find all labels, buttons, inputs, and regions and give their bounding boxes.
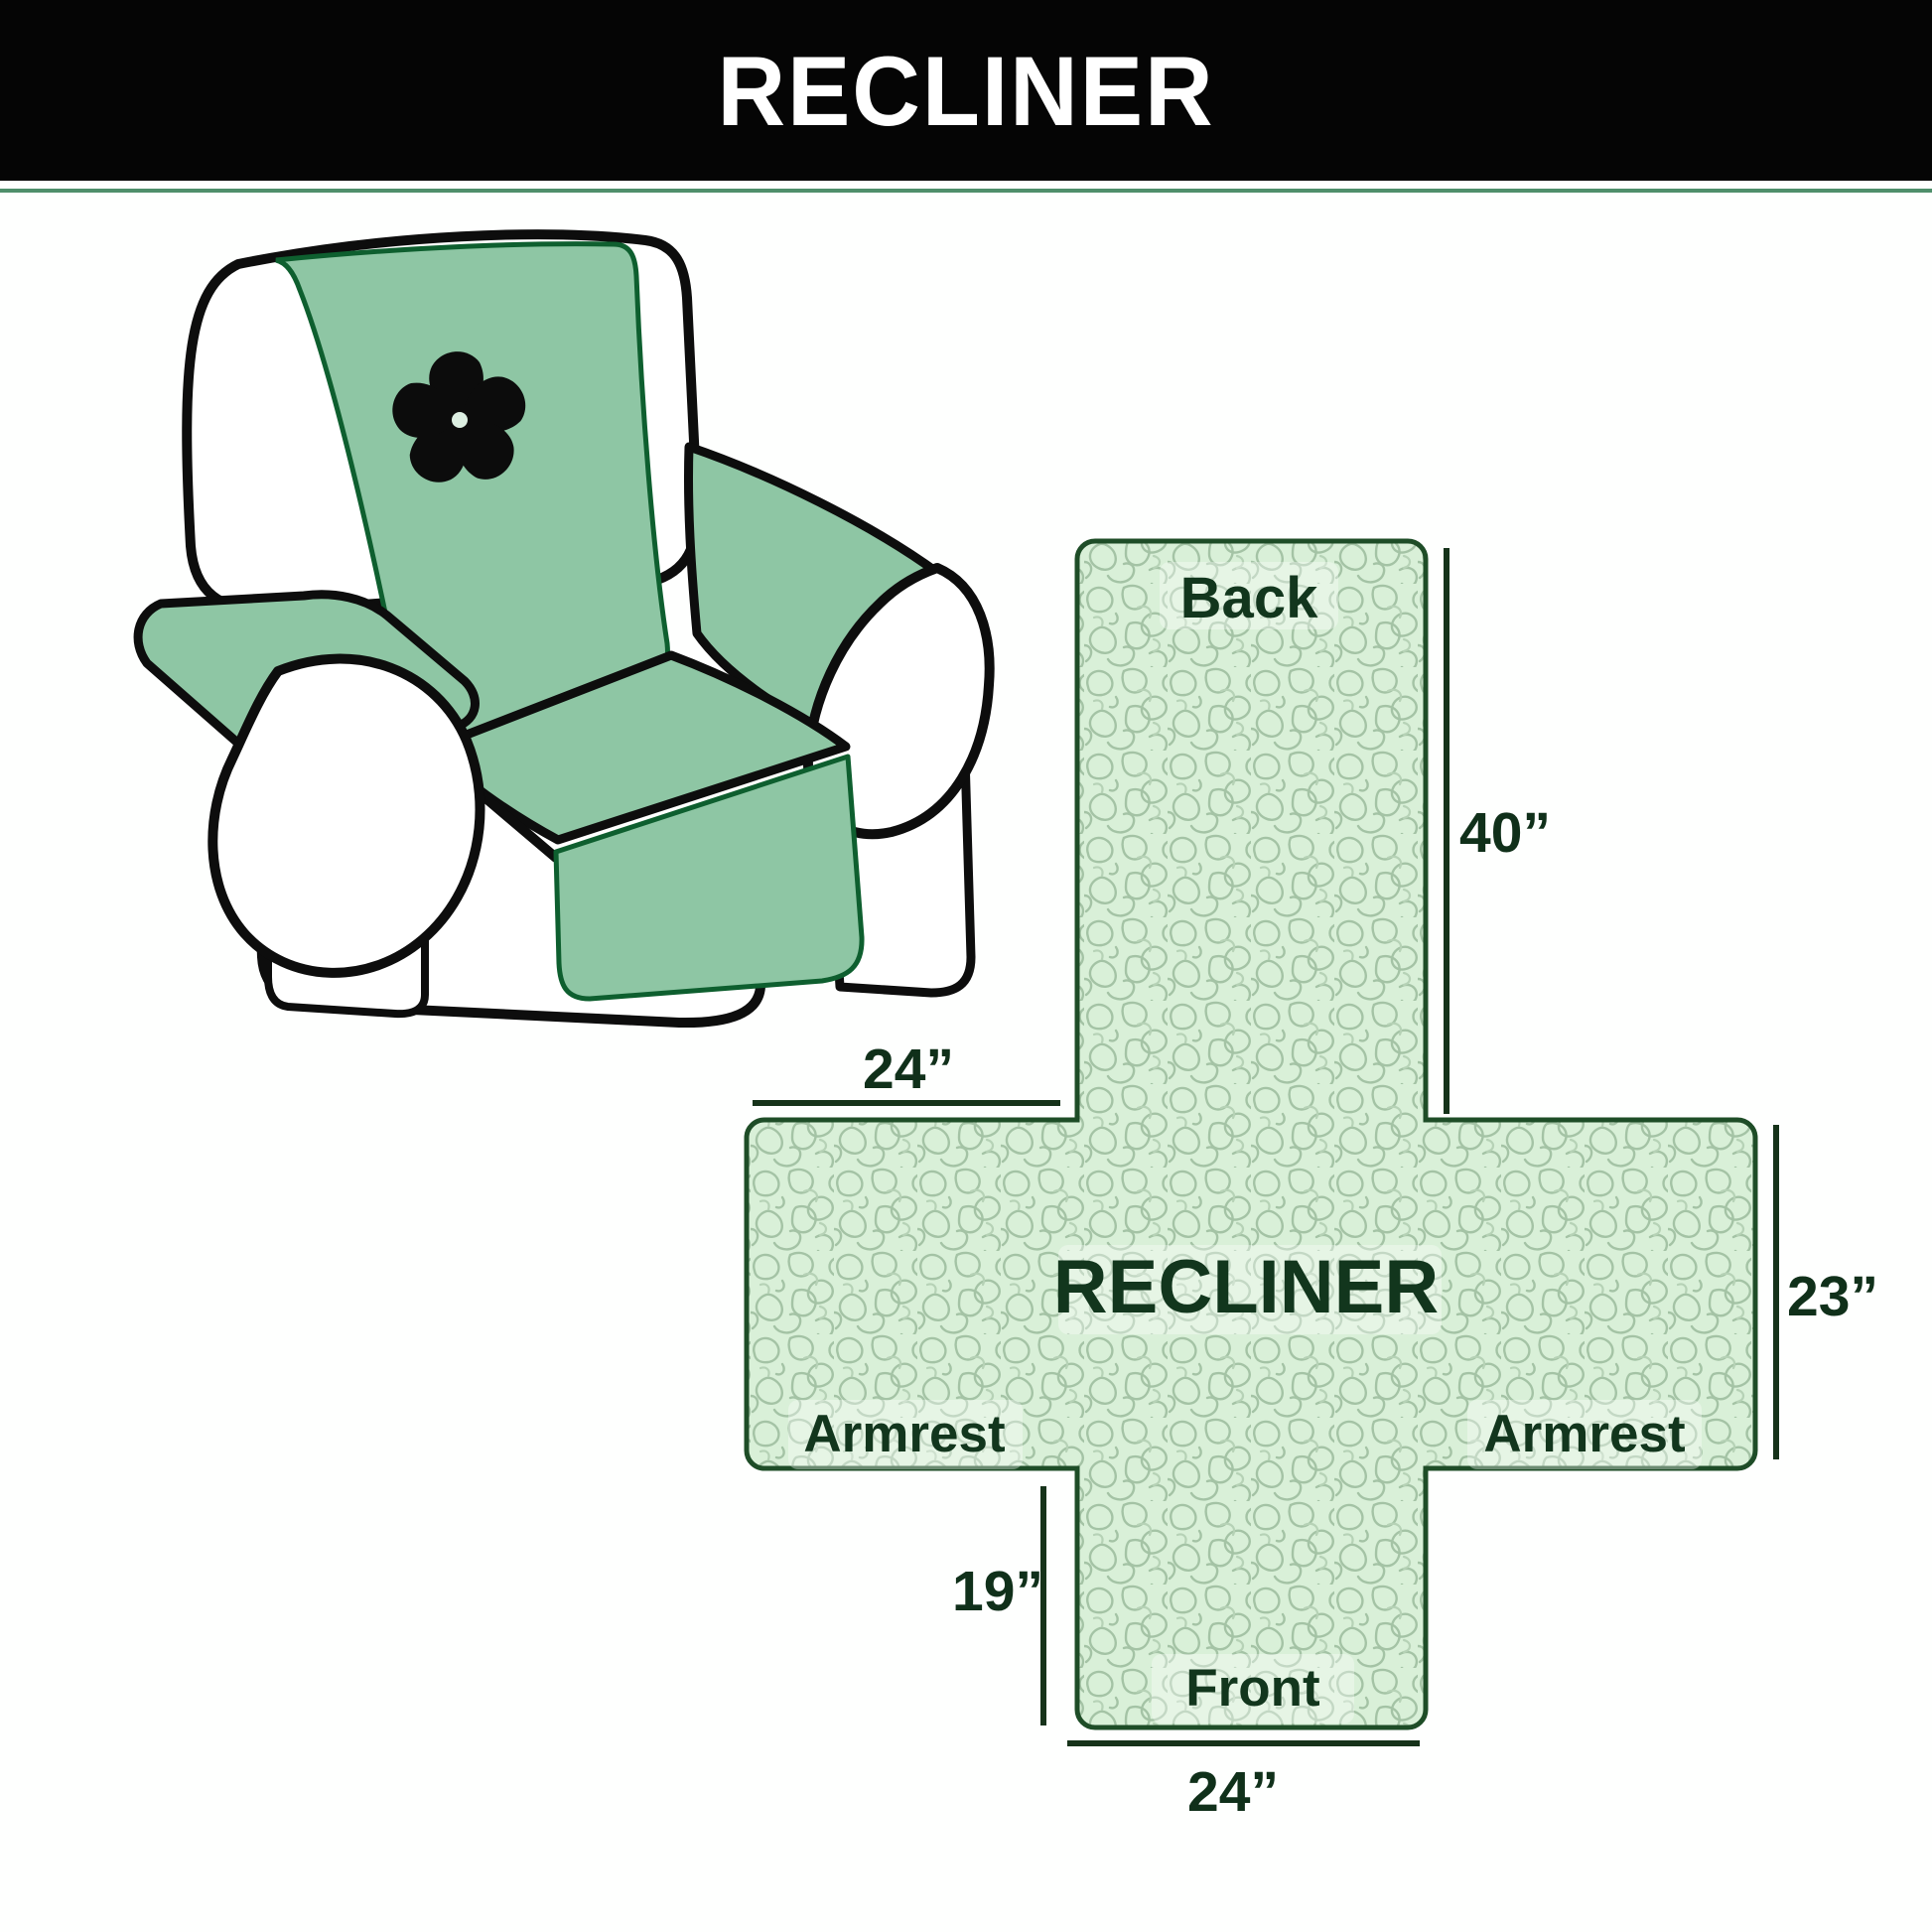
dim-front-width: 24”	[1187, 1760, 1279, 1824]
front-panel-label: Front	[1185, 1659, 1319, 1718]
center-recliner-label: RECLINER	[1053, 1245, 1439, 1329]
recliner-cover-diagram: Back RECLINER Armrest Armrest Front 40” …	[0, 0, 1932, 1932]
dim-back-height: 40”	[1459, 801, 1551, 865]
back-panel-label: Back	[1180, 566, 1318, 630]
dim-armrest-top-width: 24”	[863, 1037, 954, 1101]
armrest-left-label: Armrest	[803, 1405, 1005, 1463]
pinwheel-center-dot	[452, 412, 468, 428]
chair-illustration	[138, 234, 990, 1023]
dim-front-height: 19”	[952, 1560, 1043, 1623]
armrest-right-label: Armrest	[1483, 1405, 1685, 1463]
dim-side-height: 23”	[1787, 1265, 1878, 1328]
infographic-page: RECLINER	[0, 0, 1932, 1932]
chair-left-arm-roll	[212, 659, 480, 973]
